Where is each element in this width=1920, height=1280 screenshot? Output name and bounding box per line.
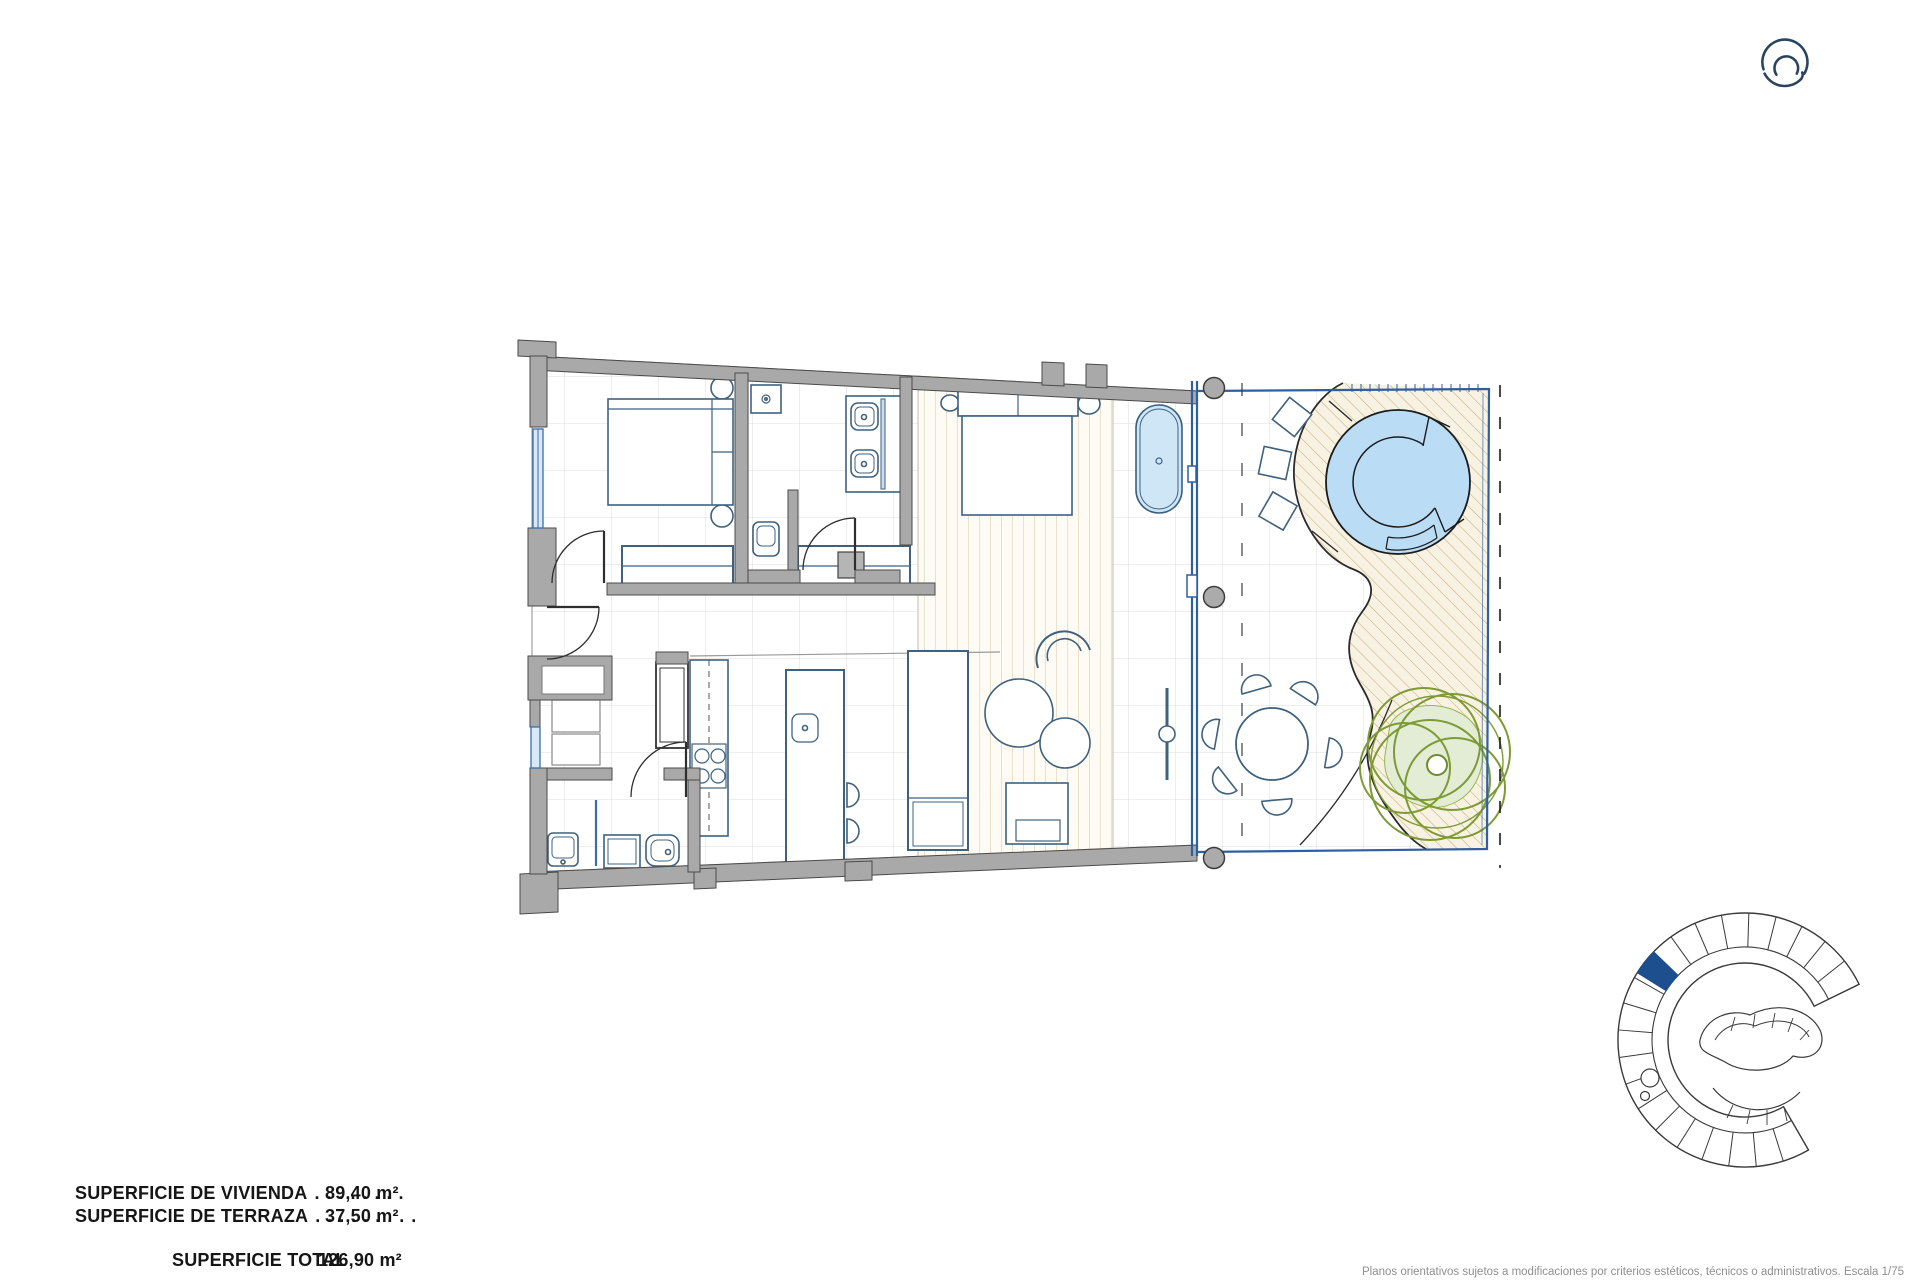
area-label: SUPERFICIE DE TERRAZA (75, 1206, 308, 1226)
terrace (1197, 383, 1510, 868)
area-row-terraza: SUPERFICIE DE TERRAZA. . . . . . . . . 3… (75, 1206, 495, 1229)
area-value: 89,40 m² (325, 1183, 399, 1204)
nightstand (711, 505, 733, 527)
kitchen-island (786, 670, 844, 864)
hall-closet (552, 700, 600, 732)
site-plan-drawing (1595, 880, 1915, 1225)
disclaimer-text: Planos orientativos sujetos a modificaci… (1362, 1266, 1920, 1278)
interior (518, 340, 1197, 914)
side-table (1040, 718, 1090, 768)
area-table: SUPERFICIE DE VIVIENDA. . . . . . . . 89… (75, 1183, 495, 1273)
mirror (881, 399, 885, 489)
nightstand (941, 395, 959, 411)
pool (1326, 410, 1470, 554)
hall-closet (552, 734, 600, 765)
site-plan (1595, 880, 1915, 1225)
page: SUPERFICIE DE VIVIENDA. . . . . . . . 89… (0, 0, 1920, 1280)
area-row-total: SUPERFICIE TOTAL 126,90 m² (75, 1250, 495, 1273)
bathtub (1136, 405, 1182, 513)
area-label: SUPERFICIE DE VIVIENDA (75, 1183, 307, 1203)
area-row-vivienda: SUPERFICIE DE VIVIENDA. . . . . . . . 89… (75, 1183, 495, 1206)
brand-logo-icon (1758, 36, 1812, 94)
column (1204, 587, 1225, 608)
area-value: 37,50 m² (325, 1206, 399, 1227)
kitchen (656, 651, 1000, 864)
bedroom1 (608, 377, 733, 585)
area-value: 126,90 m² (318, 1250, 402, 1271)
master-bed (962, 416, 1072, 515)
column (1204, 378, 1225, 399)
brand-logo (1758, 36, 1812, 94)
window (531, 727, 540, 768)
column (1204, 848, 1225, 869)
